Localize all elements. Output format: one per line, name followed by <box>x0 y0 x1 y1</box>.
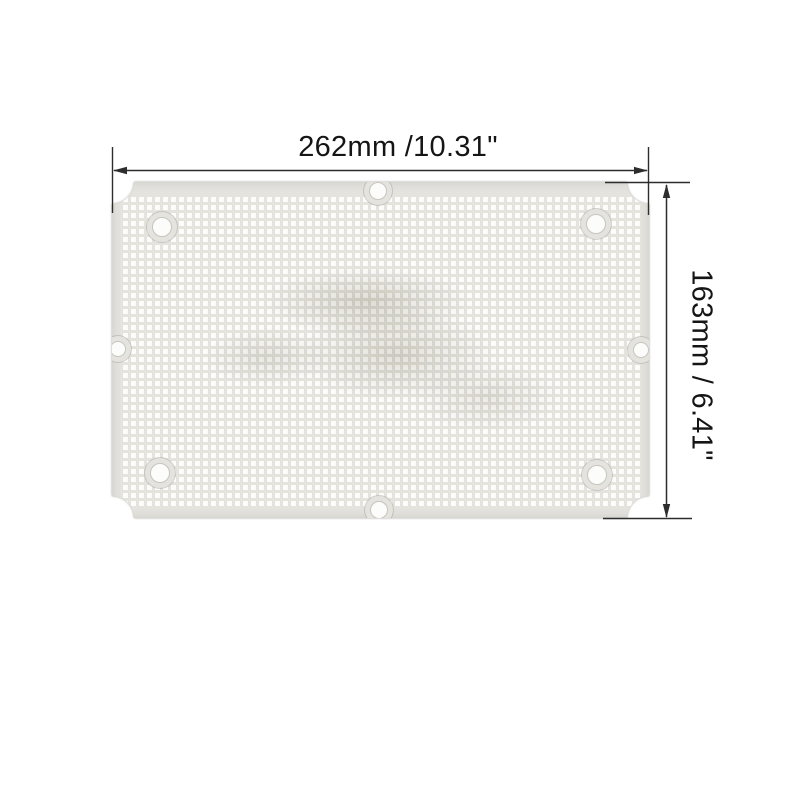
mounting-hole <box>633 342 649 358</box>
mounting-hole <box>587 465 607 485</box>
height-arrow-bottom-icon <box>663 504 670 518</box>
mounting-hole <box>152 217 172 237</box>
mounting-plate <box>112 182 649 518</box>
perforation-grid <box>120 194 640 509</box>
width-arrow-right-icon <box>634 167 648 174</box>
mounting-hole <box>586 214 606 234</box>
mounting-hole <box>150 463 170 483</box>
mounting-hole <box>110 341 126 357</box>
mounting-hole <box>369 182 387 200</box>
height-dimension-label: 163mm / 6.41" <box>687 269 716 461</box>
height-arrow-top-icon <box>663 184 670 198</box>
width-dimension-label: 262mm /10.31" <box>298 133 498 162</box>
width-arrow-left-icon <box>113 167 127 174</box>
product-image-canvas: 262mm /10.31" 163mm / 6.41" <box>0 0 800 800</box>
mounting-plate-body <box>112 182 649 518</box>
mounting-hole <box>370 501 388 519</box>
